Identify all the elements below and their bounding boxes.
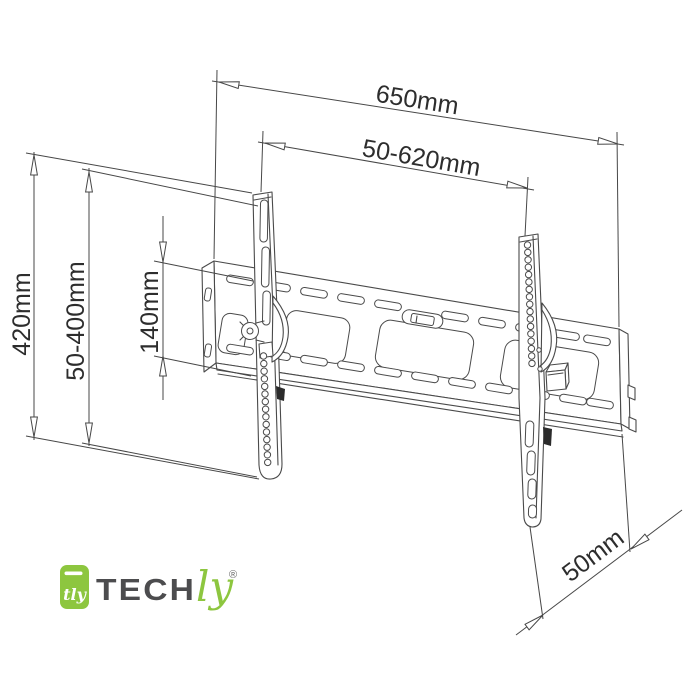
adjust-hole (261, 376, 267, 382)
adjust-hole (527, 301, 533, 307)
adjust-hole (262, 383, 268, 389)
dimension-50-620mm: 50-620mm (258, 131, 534, 236)
adjust-hole (527, 316, 533, 322)
dim-label-bracket-spacing: 50-620mm (360, 134, 483, 182)
left-vesa-bracket (240, 192, 288, 479)
adjust-hole (262, 391, 268, 397)
adjust-hole (525, 264, 531, 270)
left-bracket-slot-2 (261, 247, 269, 287)
dim-label-wall-offset: 50mm (557, 524, 629, 588)
adjust-hole (525, 257, 531, 263)
dimension-arrowhead (219, 82, 239, 89)
dimension-arrowhead (160, 356, 167, 376)
adjust-hole (262, 406, 268, 412)
adjust-hole (263, 414, 269, 420)
dimension-arrowhead (31, 417, 38, 437)
dim-label-vertical-range: 50-400mm (62, 261, 90, 381)
adjust-hole (525, 271, 531, 277)
adjust-hole (263, 429, 269, 435)
adjust-hole (527, 323, 533, 329)
ext-line (261, 131, 263, 192)
right-lock-clip (543, 427, 552, 446)
dimension-arrowhead (86, 423, 93, 443)
ext-line (214, 70, 217, 259)
dimension-arrowhead (160, 242, 167, 262)
techly-logo-icon: tly (60, 565, 89, 609)
adjust-hole (529, 353, 535, 359)
right-vesa-bracket (519, 234, 569, 527)
dim-label-hole-pitch: 140mm (136, 270, 164, 353)
logo-icon-bar (65, 572, 83, 576)
right-bracket-slot-3 (528, 479, 537, 499)
adjust-hole (528, 338, 534, 344)
dimension-arrowhead (507, 181, 527, 188)
ext-line (26, 153, 252, 193)
techly-logo: tly TECH ly ® (60, 562, 237, 611)
right-pivot-screw-1 (537, 348, 541, 352)
plate-cutout-1 (281, 309, 352, 365)
ext-line (530, 527, 543, 619)
adjust-hole (527, 308, 533, 314)
dimension-arrowhead (598, 138, 618, 145)
tv-mount-dimension-diagram: 650mm 50-620mm 420mm 50-400mm 140mm (0, 0, 700, 700)
dimension-arrowhead (31, 155, 38, 175)
adjust-hole (261, 360, 267, 366)
right-pivot-screw-2 (538, 367, 542, 371)
ext-line (26, 436, 259, 479)
registered-trademark: ® (229, 569, 237, 581)
dim-label-plate-width: 650mm (374, 80, 461, 121)
dimension-arrowhead (86, 172, 93, 192)
adjust-hole (528, 331, 534, 337)
logo-icon-monogram: tly (63, 585, 87, 604)
left-tilt-knob-center (247, 328, 253, 334)
dim-label-bracket-height: 420mm (8, 272, 36, 355)
adjust-hole (264, 452, 270, 458)
left-bracket-slot-1 (260, 200, 268, 242)
adjust-hole (526, 279, 532, 285)
left-bracket-slot-3 (262, 291, 270, 325)
right-end-tab-1 (628, 385, 635, 400)
dimension-arrowhead (525, 615, 543, 630)
adjust-hole (524, 242, 530, 248)
wall-plate-right-end-cap (619, 329, 630, 429)
dimension-arrowhead (265, 143, 285, 150)
adjust-hole (262, 398, 268, 404)
right-bracket-slot-2 (527, 451, 536, 475)
adjust-hole (264, 436, 270, 442)
ext-line (617, 132, 619, 327)
adjust-hole (526, 294, 532, 300)
brand-text-tech: TECH (96, 572, 196, 607)
adjust-hole (525, 249, 531, 255)
right-end-tab-2 (629, 417, 636, 432)
adjust-hole (529, 360, 535, 366)
technical-drawing-page: 650mm 50-620mm 420mm 50-400mm 140mm (0, 0, 700, 700)
left-lock-clip (276, 386, 285, 401)
adjust-hole (260, 353, 266, 359)
adjust-hole (263, 421, 269, 427)
right-bracket-slot-4 (528, 505, 536, 518)
ext-line (525, 177, 528, 236)
adjust-hole (265, 459, 271, 465)
adjust-hole (526, 286, 532, 292)
ext-line (82, 169, 258, 206)
adjust-hole (528, 345, 534, 351)
right-tilt-knob (546, 363, 569, 391)
right-bracket-slot-1 (525, 421, 534, 447)
adjust-hole (264, 444, 270, 450)
adjust-hole (261, 368, 267, 374)
ext-line (622, 434, 630, 552)
ext-line (82, 443, 257, 477)
dimension-arrowhead (631, 534, 649, 549)
